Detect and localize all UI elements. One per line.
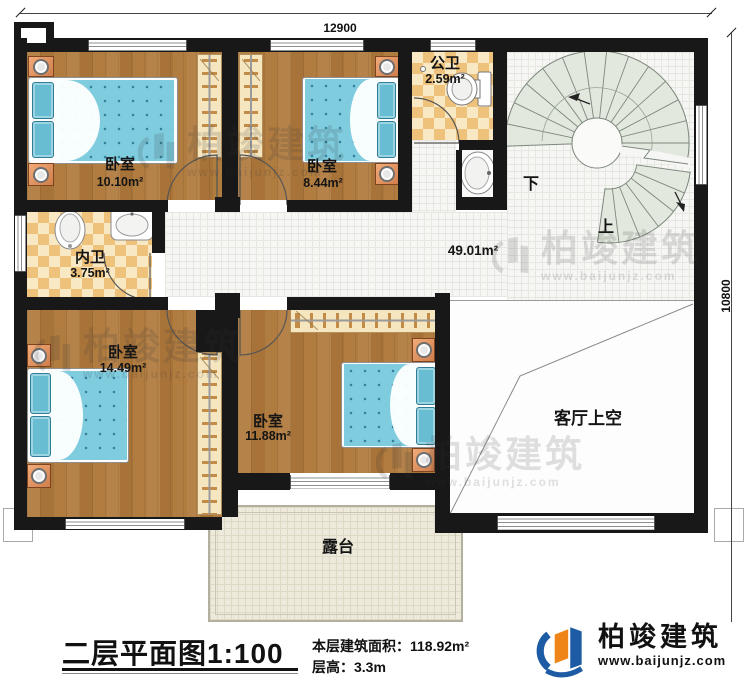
wall xyxy=(398,52,412,212)
exterior-ledge-right xyxy=(714,508,744,542)
room-area: 3.75m² xyxy=(56,267,124,281)
title-underline xyxy=(62,668,298,671)
sliding-door xyxy=(290,475,390,489)
floor-height-label: 层高： xyxy=(312,659,354,675)
title-underline-thin xyxy=(62,673,298,674)
plan-info: 本层建筑面积：118.92m² 层高：3.3m xyxy=(312,636,469,678)
pillow xyxy=(30,373,51,414)
wall xyxy=(493,52,507,210)
room-area: 10.10m² xyxy=(85,176,155,190)
plan-scale: 1:100 xyxy=(207,638,284,669)
brand-logo: 柏竣建筑 www.baijunjz.com xyxy=(534,622,726,678)
nightstand xyxy=(27,344,51,367)
caption-bar: 二层平面图1:100 本层建筑面积：118.92m² 层高：3.3m 柏竣建筑 … xyxy=(0,622,750,687)
wall xyxy=(287,297,450,310)
pillow xyxy=(377,121,396,158)
window xyxy=(430,40,476,51)
pillow xyxy=(377,82,396,119)
room-label: 公卫 xyxy=(413,56,477,73)
door-arc xyxy=(240,310,287,355)
pillow xyxy=(416,407,436,445)
wall xyxy=(456,197,507,210)
plan-title-text: 二层平面图 xyxy=(62,638,207,669)
wardrobe xyxy=(197,352,222,515)
door-arc xyxy=(167,155,217,205)
door-arc xyxy=(414,98,459,143)
wall xyxy=(238,473,290,490)
room-label: 内卫 xyxy=(60,250,120,267)
terrace-label: 露台 xyxy=(306,533,370,557)
wall xyxy=(196,310,222,352)
pillow xyxy=(32,121,54,158)
brand-logo-icon xyxy=(534,622,592,678)
wall xyxy=(14,38,27,530)
dimension-height: 10800 xyxy=(719,266,733,326)
living-void-label: 客厅上空 xyxy=(528,404,648,429)
wardrobe xyxy=(239,54,263,158)
wall xyxy=(152,208,165,253)
toilet xyxy=(53,206,87,252)
window xyxy=(88,40,187,51)
wardrobe xyxy=(290,308,437,333)
room-area: 14.49m² xyxy=(88,362,158,376)
brand-name: 柏竣建筑 xyxy=(598,622,726,653)
wall xyxy=(390,473,450,490)
floor-height-line: 层高：3.3m xyxy=(312,657,469,678)
brand-website: www.baijunjz.com xyxy=(598,653,726,668)
floor-height-value: 3.3m xyxy=(354,659,386,675)
stair-up-label: 上 xyxy=(593,213,619,237)
floor-plan: 卧室 10.10m² 卧室 8.44m² 公卫 2.59m² 内卫 3.75m²… xyxy=(0,0,750,687)
nightstand xyxy=(375,163,399,185)
room-label: 卧室 xyxy=(90,157,150,174)
wall xyxy=(287,200,412,212)
wardrobe xyxy=(197,54,222,158)
floor-area-line: 本层建筑面积：118.92m² xyxy=(312,636,469,657)
dimension-line-top xyxy=(20,13,712,14)
wall xyxy=(14,297,168,310)
nightstand xyxy=(28,163,54,186)
pillow xyxy=(32,82,54,119)
wall xyxy=(459,140,507,150)
window xyxy=(497,516,655,530)
nightstand xyxy=(27,464,51,488)
nightstand xyxy=(412,448,435,472)
wall xyxy=(215,197,240,212)
dimension-line-right xyxy=(731,33,732,660)
wall xyxy=(222,52,238,200)
hall-area: 49.01m² xyxy=(423,244,523,259)
room-area: 8.44m² xyxy=(288,177,358,191)
window xyxy=(696,105,707,185)
plan-title: 二层平面图1:100 xyxy=(62,632,284,672)
dimension-width: 12900 xyxy=(300,21,380,35)
door-arc xyxy=(240,155,287,205)
pillow xyxy=(416,367,436,405)
window xyxy=(65,519,185,529)
wall xyxy=(222,297,238,517)
pillow xyxy=(30,416,51,457)
room-label: 卧室 xyxy=(292,159,352,176)
wall xyxy=(14,200,168,212)
nightstand xyxy=(28,56,54,77)
room-label: 卧室 xyxy=(93,345,153,362)
room-area: 2.59m² xyxy=(411,73,479,87)
window xyxy=(15,215,26,272)
washbasin xyxy=(459,148,497,198)
nightstand xyxy=(375,56,399,77)
bath-vestibule-floor xyxy=(412,140,456,212)
room-area: 11.88m² xyxy=(233,430,303,444)
floor-area-value: 118.92m² xyxy=(410,638,469,654)
terrace-floor xyxy=(208,505,463,622)
nightstand xyxy=(412,338,435,362)
wall xyxy=(456,150,462,197)
stair-down-label: 下 xyxy=(518,170,544,194)
wall xyxy=(435,293,450,533)
floor-area-label: 本层建筑面积： xyxy=(312,638,410,654)
window xyxy=(270,40,364,51)
